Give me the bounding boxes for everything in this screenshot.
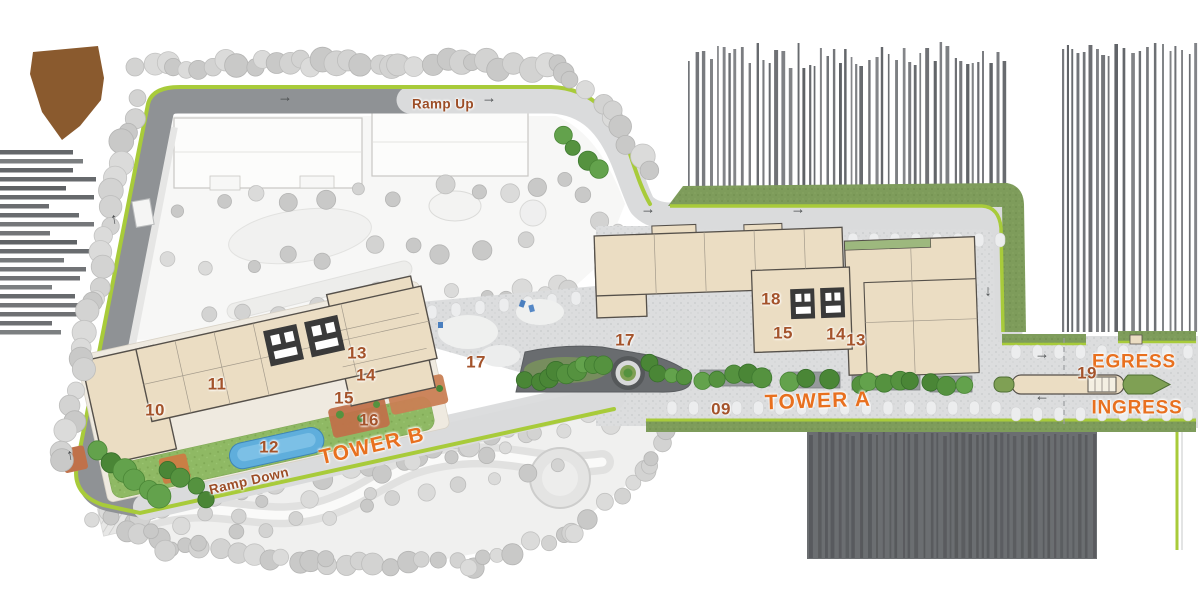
arrow-left-icon: ← xyxy=(1035,388,1050,405)
egress-label: EGRESS xyxy=(1092,353,1176,372)
arrow-down-icon: ↓ xyxy=(984,283,992,300)
unit-marker-14-b[interactable]: 14 xyxy=(356,367,376,384)
unit-marker-14-a[interactable]: 14 xyxy=(826,326,846,343)
ingress-label: INGRESS xyxy=(1091,399,1182,418)
shelter xyxy=(132,199,154,228)
unit-marker-15-b[interactable]: 15 xyxy=(334,390,354,407)
guard-booth xyxy=(1130,335,1142,344)
southeast-context-block xyxy=(807,431,1182,559)
unit-marker-10[interactable]: 10 xyxy=(145,402,165,419)
arrow-right-icon: → xyxy=(641,201,656,218)
unit-marker-12[interactable]: 12 xyxy=(259,439,279,456)
tower-a-core xyxy=(820,287,845,318)
site-plan-graphic xyxy=(0,0,1200,593)
tower-a-core xyxy=(790,288,815,319)
unit-marker-17-west[interactable]: 17 xyxy=(466,354,486,371)
unit-marker-13-a[interactable]: 13 xyxy=(846,332,866,349)
unit-marker-17-central[interactable]: 17 xyxy=(615,332,635,349)
east-context-hatch xyxy=(1062,43,1197,332)
arrow-right-icon: → xyxy=(791,201,806,218)
arrow-right-icon: → xyxy=(278,89,293,106)
ramp-up-label: Ramp Up xyxy=(412,97,474,111)
unit-marker-19[interactable]: 19 xyxy=(1077,365,1097,382)
out-parcel xyxy=(30,46,104,140)
unit-marker-11[interactable]: 11 xyxy=(208,376,227,393)
unit-marker-15-a[interactable]: 15 xyxy=(773,325,793,342)
unit-marker-13-b[interactable]: 13 xyxy=(347,345,367,362)
north-context-hatch xyxy=(688,42,1006,188)
arrow-right-icon: → xyxy=(482,90,497,107)
arrow-right-icon: → xyxy=(1035,346,1050,363)
amenity-building-footprint xyxy=(372,112,528,176)
unit-marker-18[interactable]: 18 xyxy=(761,291,781,308)
unit-marker-16[interactable]: 16 xyxy=(359,412,379,429)
tower-a-label[interactable]: TOWER A xyxy=(764,389,871,414)
site-plan: Ramp Up Ramp Down TOWER B TOWER A EGRESS… xyxy=(0,0,1200,593)
unit-marker-09[interactable]: 09 xyxy=(711,401,731,418)
